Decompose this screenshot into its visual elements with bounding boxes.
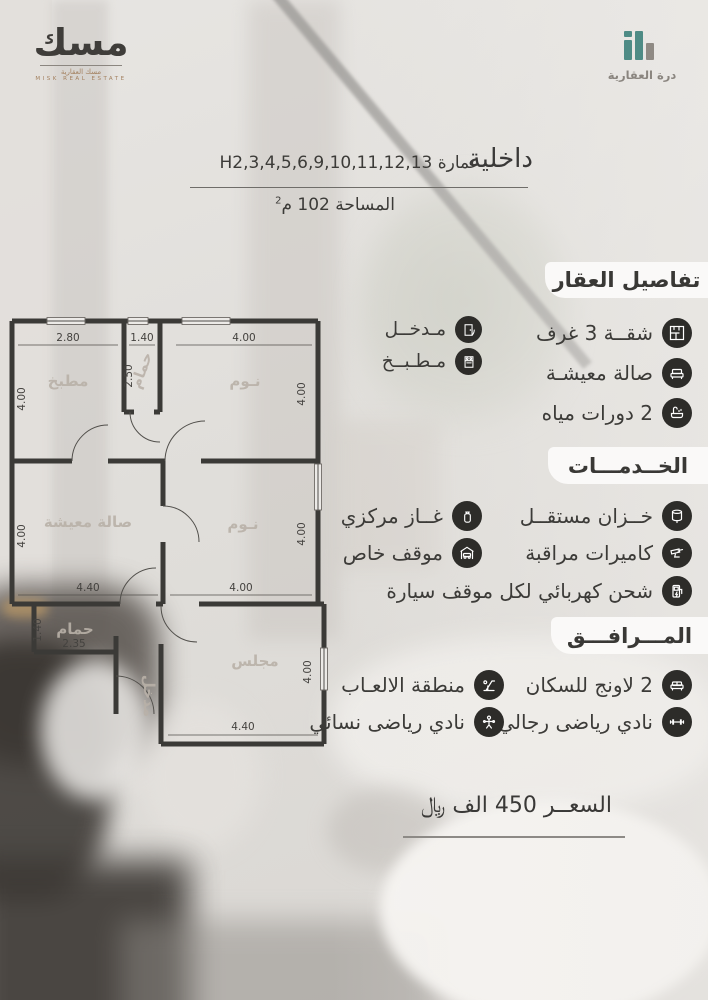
area-text: المساحة 102 م2 — [233, 195, 437, 215]
kitchen-stove-icon — [455, 348, 482, 375]
brand-misk-logo: مسك مسك العقارية MISK REAL ESTATE — [26, 24, 136, 82]
section-title-details: تفاصيل العقار — [545, 262, 708, 298]
building-numbers: عمارة H2,3,4,5,6,9,10,11,12,13 — [219, 153, 480, 173]
header-divider — [190, 187, 528, 188]
room-label-majlis: مجلس — [231, 652, 278, 670]
dim-bath-top-width: 1.40 — [130, 332, 153, 344]
entry-label: مـطـبــخ — [382, 351, 446, 372]
detail-item-bathrooms: 2 دورات مياه — [542, 398, 692, 428]
brand-misk-subtitle-en: MISK REAL ESTATE — [26, 76, 136, 82]
price-underline — [403, 836, 625, 838]
brand-misk-divider — [40, 65, 122, 66]
entry-label: مـدخــل — [385, 319, 446, 340]
gym-women-icon — [474, 707, 504, 737]
service-label: موقف خاص — [343, 541, 443, 565]
price-text: السعــر 450 الف ﷼ — [421, 793, 612, 818]
dim-bed-mid-height: 4.00 — [296, 522, 308, 545]
facility-item-playground: منطقة الالعـاب — [341, 670, 504, 700]
dim-bath-bottom-width: 2.35 — [62, 638, 85, 650]
dim-bath-bottom-height: 1.40 — [32, 618, 44, 641]
gas-cylinder-icon — [452, 501, 482, 531]
facility-label: نادي رياضى رجالي — [498, 710, 653, 734]
detail-label: شقــة 3 غرف — [536, 321, 653, 345]
section-title-services: الخــدمـــات — [548, 447, 708, 484]
entrance-door-icon — [455, 316, 482, 343]
cctv-camera-icon — [662, 538, 692, 568]
detail-item-living: صالة معيشـة — [546, 358, 692, 388]
playground-icon — [474, 670, 504, 700]
living-room-icon — [662, 358, 692, 388]
facility-item-gym-men: نادي رياضى رجالي — [498, 707, 692, 737]
lounge-sofa-icon — [662, 670, 692, 700]
room-label-bed-mid: نـوم — [227, 515, 258, 533]
room-label-bath-bottom: حمام — [56, 620, 94, 638]
buildings-icon — [620, 28, 664, 62]
dim-kitchen-height: 4.00 — [16, 387, 28, 410]
detail-item-apartment: شقــة 3 غرف — [536, 318, 692, 348]
service-label: شحن كهربائي لكل موقف سيارة — [386, 579, 653, 603]
gym-men-icon — [662, 707, 692, 737]
dim-bed-mid-width: 4.00 — [229, 582, 252, 594]
service-label: خــزان مستقــل — [520, 504, 653, 528]
room-label-bed-top: نـوم — [229, 372, 260, 390]
private-parking-icon — [452, 538, 482, 568]
flyer-canvas: مسك مسك العقارية MISK REAL ESTATE درة ال… — [0, 0, 708, 1000]
detail-label: صالة معيشـة — [546, 361, 653, 385]
dim-kitchen-width: 2.80 — [56, 332, 79, 344]
dim-majlis-width: 4.40 — [231, 721, 254, 733]
water-tank-icon — [662, 501, 692, 531]
facility-label: 2 لاونج للسكان — [526, 673, 653, 697]
floor-plan: 2.80 1.40 4.00 4.00 2.50 4.00 4.00 4.00 … — [8, 314, 340, 756]
section-title-facilities: المـــرافـــق — [551, 617, 708, 654]
brand-durrah-name: درة العقارية — [594, 68, 690, 82]
service-item-cameras: كاميرات مراقبة — [525, 538, 692, 568]
entry-item-entrance: مـدخــل — [385, 316, 482, 343]
area-label: المساحة 102 م — [281, 195, 395, 215]
bathrooms-icon — [662, 398, 692, 428]
dimension-lines — [18, 345, 318, 735]
service-item-parking: موقف خاص — [343, 538, 482, 568]
dim-bed-top-width: 4.00 — [232, 332, 255, 344]
room-label-living: صالة معيشة — [44, 513, 132, 531]
facility-item-lounge: 2 لاونج للسكان — [526, 670, 692, 700]
brand-misk-wordmark: مسك — [26, 24, 136, 63]
service-label: غــاز مركزي — [341, 504, 443, 528]
apartment-plan-icon — [662, 318, 692, 348]
brand-durrah-logo: درة العقارية — [594, 28, 690, 82]
dim-living-height: 4.00 — [16, 524, 28, 547]
ev-charging-icon — [662, 576, 692, 606]
door-arcs — [72, 412, 205, 714]
service-label: كاميرات مراقبة — [525, 541, 653, 565]
dim-bed-top-height: 4.00 — [296, 382, 308, 405]
service-item-gas: غــاز مركزي — [341, 501, 482, 531]
entry-item-kitchen: مـطـبــخ — [382, 348, 482, 375]
room-label-kitchen: مطبخ — [48, 372, 89, 390]
room-label-entrance: مدخل — [140, 675, 158, 717]
facility-label: منطقة الالعـاب — [341, 673, 465, 697]
detail-label: 2 دورات مياه — [542, 401, 653, 425]
brand-misk-subtitle-ar: مسك العقارية — [26, 68, 136, 76]
dim-living-width: 4.40 — [76, 582, 99, 594]
service-item-tank: خــزان مستقــل — [520, 501, 692, 531]
dim-majlis-height: 4.00 — [302, 660, 314, 683]
service-item-ev-charging: شحن كهربائي لكل موقف سيارة — [386, 576, 692, 606]
room-label-bath-top: حمام — [126, 350, 156, 391]
